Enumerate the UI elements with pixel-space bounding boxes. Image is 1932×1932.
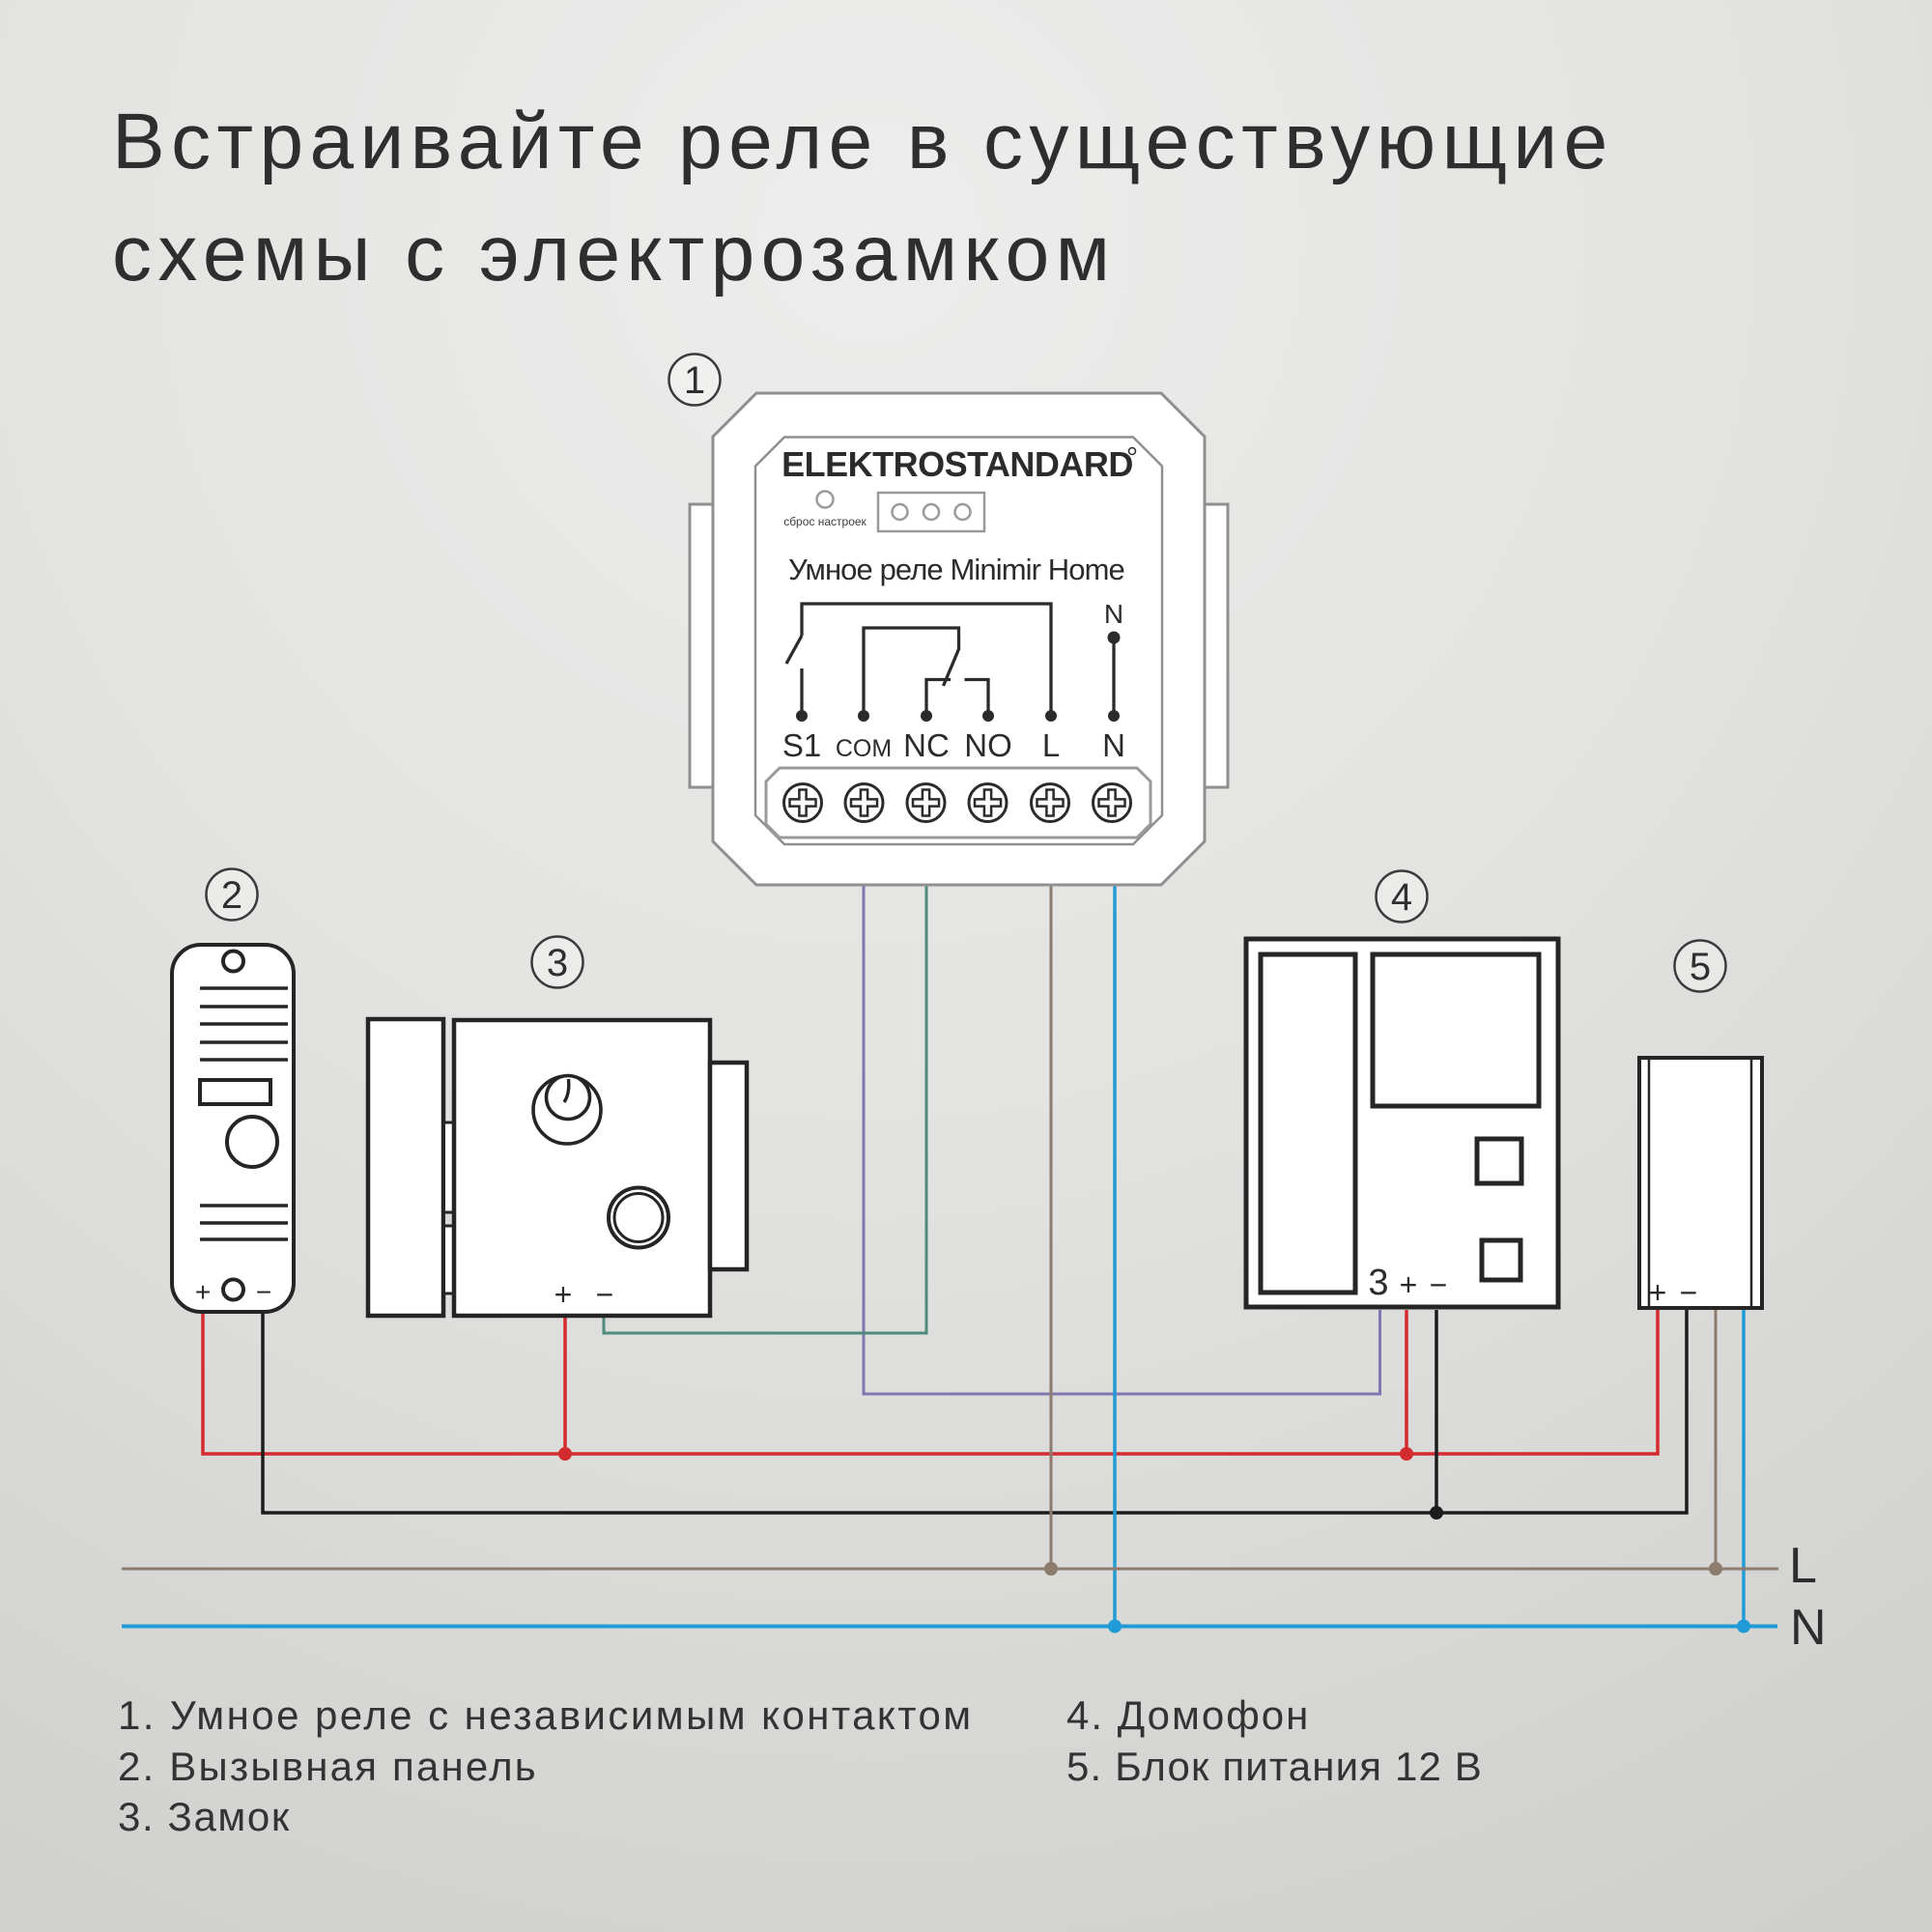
svg-text:L: L xyxy=(1789,1538,1817,1594)
svg-text:1. Умное реле с независимым ко: 1. Умное реле с независимым контактом xyxy=(118,1692,974,1738)
svg-text:−: − xyxy=(596,1277,614,1312)
svg-text:+: + xyxy=(1400,1267,1418,1302)
svg-text:NC: NC xyxy=(903,727,950,763)
svg-text:схемы с электрозамком: схемы с электрозамком xyxy=(112,210,1116,298)
svg-text:3: 3 xyxy=(547,942,568,984)
svg-text:S1: S1 xyxy=(782,727,821,763)
svg-text:+: + xyxy=(1649,1275,1667,1310)
svg-text:ELEKTROSTANDARD: ELEKTROSTANDARD xyxy=(781,444,1133,484)
svg-text:N: N xyxy=(1790,1600,1827,1656)
svg-text:5. Блок питания 12 В: 5. Блок питания 12 В xyxy=(1066,1744,1483,1789)
svg-text:5: 5 xyxy=(1690,946,1711,988)
svg-text:N: N xyxy=(1102,727,1125,763)
svg-text:COM: COM xyxy=(836,735,892,762)
svg-text:4. Домофон: 4. Домофон xyxy=(1066,1692,1310,1738)
svg-text:Встраивайте реле в существующи: Встраивайте реле в существующие xyxy=(112,98,1614,185)
svg-text:N: N xyxy=(1104,599,1123,629)
svg-text:Умное реле Minimir Home: Умное реле Minimir Home xyxy=(788,553,1124,586)
svg-text:+: + xyxy=(554,1277,573,1312)
svg-text:2: 2 xyxy=(221,874,242,917)
svg-text:+: + xyxy=(195,1277,211,1307)
svg-text:−: − xyxy=(1430,1267,1448,1302)
svg-text:3: 3 xyxy=(1368,1263,1388,1303)
svg-text:L: L xyxy=(1042,727,1060,763)
svg-text:сброс настроек: сброс настроек xyxy=(783,515,867,528)
svg-text:−: − xyxy=(1680,1275,1698,1310)
svg-text:−: − xyxy=(256,1277,271,1307)
svg-text:NO: NO xyxy=(964,727,1012,763)
svg-text:4: 4 xyxy=(1391,876,1412,919)
svg-text:2. Вызывная панель: 2. Вызывная панель xyxy=(118,1744,538,1789)
svg-text:1: 1 xyxy=(684,359,705,402)
svg-text:3. Замок: 3. Замок xyxy=(118,1794,291,1839)
